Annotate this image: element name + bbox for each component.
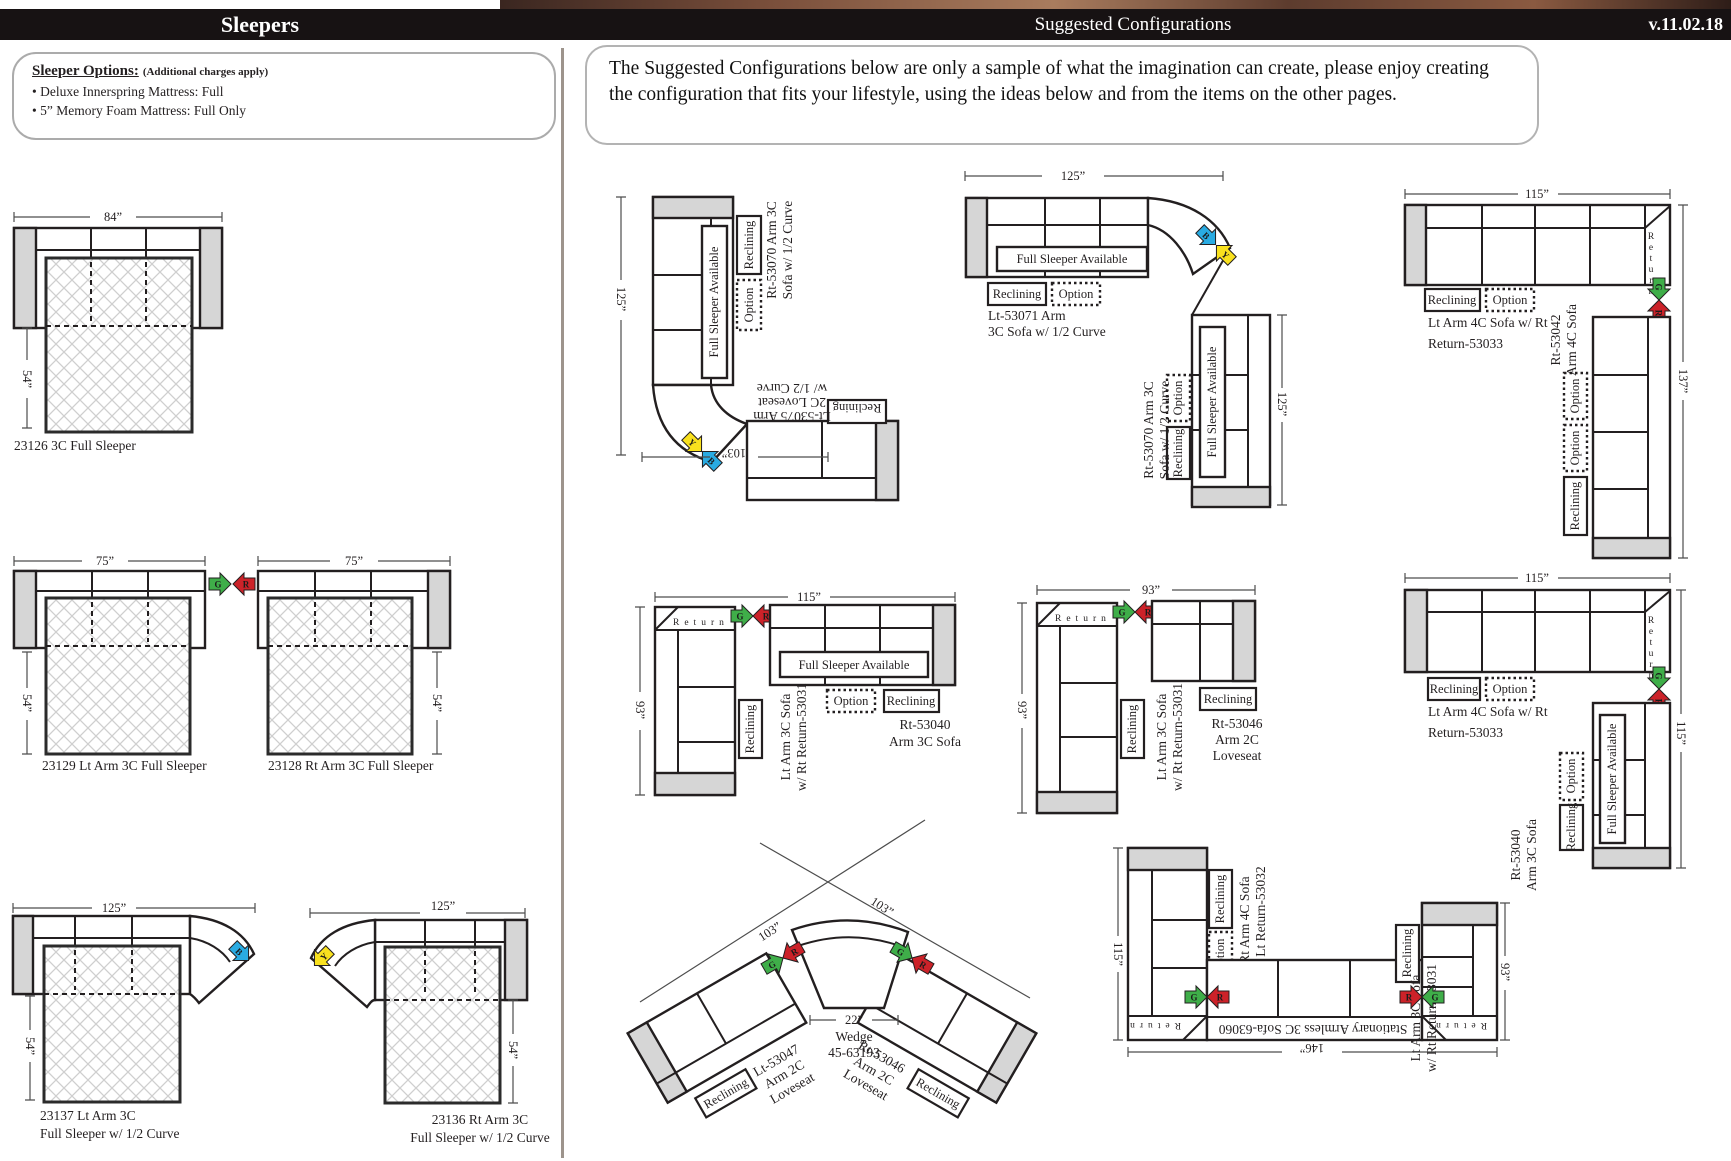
width-dim: 75” [96, 554, 114, 568]
height-dim: 115” [1674, 721, 1688, 745]
full-sleeper-label: Full Sleeper Available [1605, 723, 1619, 834]
dim-left: 103” [756, 919, 784, 944]
width-dim: 146” [1300, 1041, 1324, 1055]
option-label: Option [1564, 758, 1578, 793]
width-dim: 115” [797, 590, 821, 604]
piece-label: Rt-53042 [1548, 314, 1563, 365]
sleeper-label: 23128 Rt Arm 3C Full Sleeper [268, 758, 434, 773]
left-arm [1405, 205, 1426, 285]
wedge-dim: 22” [845, 1013, 863, 1027]
piece-label: Arm 3C Sofa [1524, 819, 1539, 891]
config-wedge-group: 103” 103” Reclining Lt-53047 Arm 2C Love… [628, 820, 1037, 1152]
sleeper-label: 23137 Lt Arm 3C [40, 1108, 136, 1123]
piece-label: Lt-53071 Arm [988, 308, 1066, 323]
reclining-label: Reclining [1564, 802, 1578, 851]
height-dim: 125” [1275, 392, 1289, 416]
piece-label: Rt-53046 [1211, 716, 1262, 731]
reclining-label: Reclining [1125, 704, 1139, 753]
diagram-element: R [1145, 608, 1152, 618]
sleeper-label: Full Sleeper w/ 1/2 Curve [410, 1130, 549, 1145]
bottom-arm [1593, 538, 1670, 558]
config-53071-53070: 125” Full Sleeper Available Reclining Op… [965, 169, 1289, 507]
reclining-label: Reclining [1213, 874, 1227, 923]
piece-label: Loveseat [1213, 748, 1262, 763]
return-label: Return [1431, 1020, 1487, 1030]
left-arm [14, 571, 36, 648]
full-sleeper-label: Full Sleeper Available [799, 658, 910, 672]
sleeper-23128: 75” R 54” 23128 Rt Arm 3C Full Sleeper [233, 554, 450, 773]
option-label: Option [1493, 293, 1528, 307]
diagram-element: G [1118, 608, 1125, 618]
diagram-element: R [243, 580, 250, 590]
right-arm [428, 571, 450, 648]
vert-sofa-body [1593, 317, 1670, 558]
depth-dim: 54” [506, 1041, 520, 1059]
right-arm [933, 605, 955, 685]
height-dim: 93” [1498, 963, 1512, 981]
reclining-label: Reclining [1400, 928, 1414, 977]
piece-label: Stationary Armless 3C Sofa-63060 [1218, 1022, 1407, 1037]
width-dim: 93” [1142, 583, 1160, 597]
diagram-element: R [1654, 310, 1664, 317]
option-label: Option [1568, 430, 1582, 465]
sleeper-label: Full Sleeper w/ 1/2 Curve [40, 1126, 179, 1141]
option-label: Option [1171, 380, 1185, 415]
diagram-shape [310, 908, 525, 918]
diagram-element: R [1217, 993, 1224, 1003]
option-label: Option [1568, 378, 1582, 413]
reclining-label: Reclining [887, 694, 936, 708]
diagram-element: G [1654, 672, 1664, 679]
sleeper-label: 23136 Rt Arm 3C [432, 1112, 528, 1127]
mattress [46, 258, 192, 432]
config-u-shape: Return 115” Reclining Option Rt Arm 4C S… [1111, 848, 1512, 1072]
full-sleeper-label: Full Sleeper Available [1205, 346, 1219, 457]
config-53070-53075: 125” Full Sleeper Available Reclining Op… [614, 197, 898, 500]
right-arm [200, 228, 222, 328]
reclining-label: Reclining [832, 401, 881, 415]
vert-sofa-left [1128, 848, 1207, 1040]
piece-label: Lt-53075 Arm [753, 409, 831, 424]
piece-label: Return-53033 [1428, 725, 1503, 740]
height-dim: 115” [1111, 942, 1125, 966]
piece-label: 2C Loveseat [758, 395, 826, 410]
left-arm [966, 198, 987, 277]
diagram-element: G [1431, 993, 1438, 1003]
bottom-arm [1593, 848, 1670, 868]
half-curve [1148, 198, 1230, 274]
option-label: Option [742, 287, 756, 322]
width-dim: 115” [1525, 187, 1549, 201]
piece-label: Sofa w/ 1/2 Curve [1157, 381, 1172, 480]
diagram-element: G [214, 580, 221, 590]
reclining-label: Reclining [1204, 692, 1253, 706]
reclining-label: Reclining [1171, 428, 1185, 477]
sleeper-label: 23129 Lt Arm 3C Full Sleeper [42, 758, 207, 773]
option-label: Option [1059, 287, 1094, 301]
top-arm [653, 197, 733, 218]
option-label: Option [1493, 682, 1528, 696]
piece-label: Rt-53070 Arm 3C [1141, 381, 1156, 479]
bottom-arm [1192, 487, 1270, 507]
arrow-green-icon: G [209, 573, 231, 595]
top-arm [1422, 903, 1497, 925]
return-label: Return [673, 618, 729, 628]
diagram-element: R [763, 612, 770, 622]
piece-label: Lt Arm 3C Sofa [778, 694, 793, 781]
full-sleeper-label: Full Sleeper Available [707, 246, 721, 357]
piece-label: Rt-53040 [1508, 829, 1523, 880]
width-dim: 115” [1525, 571, 1549, 585]
piece-label: w/ Rt Return-53031 [794, 683, 809, 791]
depth-dim: 54” [23, 1037, 37, 1055]
piece-label: Arm 4C Sofa [1564, 304, 1579, 376]
piece-label: Sofa w/ 1/2 Curve [780, 201, 795, 300]
wedge-label: Wedge [835, 1029, 872, 1044]
width-dim: 84” [104, 210, 122, 224]
return-label: Return [1125, 1020, 1181, 1030]
height-dim: 93” [633, 701, 647, 719]
piece-label: Arm 3C Sofa [889, 734, 961, 749]
top-arm [1128, 848, 1207, 870]
diagram-element: G [736, 612, 743, 622]
mattress [46, 598, 190, 754]
reclining-label: Reclining [1430, 682, 1479, 696]
piece-label: w/ Rt Return-53031 [1170, 683, 1185, 791]
piece-label: w/ 1/2 Curve [757, 381, 828, 396]
reclining-label: Reclining [993, 287, 1042, 301]
dim-right: 103” [868, 894, 896, 919]
piece-label: Rt-53040 [899, 717, 950, 732]
piece-label: Lt Arm 4C Sofa w/ Rt [1428, 704, 1548, 719]
reclining-label: Reclining [1428, 293, 1477, 307]
depth-dim: 54” [20, 694, 34, 712]
piece-label: Return-53033 [1428, 336, 1503, 351]
diagram-canvas: 84” 54” 23126 3C Full Sleeper 75” G 54” … [0, 0, 1731, 1161]
config-53033-53040: 115” Return G R Reclining Option Lt Arm … [1405, 571, 1688, 891]
left-arm [13, 916, 33, 994]
sofa-body [1405, 590, 1670, 672]
diagram-shape [965, 171, 1223, 181]
sofa-body [1405, 205, 1670, 285]
mattress [268, 598, 412, 754]
reclining-label: Reclining [1568, 481, 1582, 530]
bottom-arm [655, 773, 735, 795]
piece-label: w/ Lt Return-53032 [1253, 866, 1268, 973]
left-arm [1405, 590, 1427, 672]
height-dim: 93” [1015, 701, 1029, 719]
sleeper-23126: 84” 54” 23126 3C Full Sleeper [14, 210, 222, 453]
left-arm [14, 228, 36, 328]
mattress [385, 947, 500, 1103]
option-label: Option [834, 694, 869, 708]
width-dim: 125” [102, 901, 126, 915]
piece-label: Lt Arm 3C Sofa [1408, 975, 1423, 1062]
diagram-element: G [1654, 283, 1664, 290]
piece-label: Lt Arm 4C Sofa w/ Rt [1428, 315, 1548, 330]
piece-label: Lt Arm 3C Sofa [1154, 694, 1169, 781]
vert-sofa-body [1037, 603, 1117, 813]
reclining-label: Reclining [742, 220, 756, 269]
sleeper-label: 23126 3C Full Sleeper [14, 438, 136, 453]
mattress [44, 946, 180, 1102]
loveseat-left: Reclining Lt-53047 Arm 2C Loveseat [628, 953, 835, 1152]
width-dim: 75” [345, 554, 363, 568]
config-53033-53042: 115” Return G R Reclining Option Lt Arm … [1405, 187, 1690, 558]
width-dim: 103” [722, 446, 746, 460]
height-dim: 125” [614, 287, 628, 311]
piece-label: Arm 2C [1215, 732, 1259, 747]
diagram-shape [616, 197, 626, 455]
piece-label: 3C Sofa w/ 1/2 Curve [988, 324, 1106, 339]
sleeper-23137: 125” B 54” 23137 Lt Arm 3C Full Sleeper … [13, 901, 256, 1141]
sleeper-23129: 75” G 54” 23129 Lt Arm 3C Full Sleeper [14, 554, 231, 773]
diagram-element: R [1406, 993, 1413, 1003]
height-dim: 137” [1676, 369, 1690, 393]
depth-dim: 54” [20, 370, 34, 388]
config-53031-53040: 115” Return 93” G R Full Sleeper Availab… [633, 590, 961, 795]
vert-sofa-body [655, 607, 735, 795]
full-sleeper-label: Full Sleeper Available [1017, 252, 1128, 266]
bottom-arm [1037, 792, 1117, 813]
width-dim: 125” [1061, 169, 1085, 183]
piece-label: Rt Arm 4C Sofa [1237, 876, 1252, 963]
right-arm [505, 920, 527, 1000]
return-label: Return [1055, 614, 1111, 624]
arrow-red-icon: R [233, 573, 255, 595]
width-dim: 125” [431, 899, 455, 913]
diagram-shape [13, 903, 255, 913]
piece-label: w/ Rt Return-53031 [1424, 964, 1439, 1072]
depth-dim: 54” [430, 694, 444, 712]
config-53031-53046: 93” Return 93” G R Reclining Rt-53046 Ar… [1015, 583, 1263, 813]
diagram-element: G [1190, 993, 1197, 1003]
reclining-label: Reclining [743, 704, 757, 753]
right-arm [1233, 601, 1255, 681]
wedge-label: 45-63193 [828, 1045, 880, 1060]
sleeper-23136: 125” Y 54” 23136 Rt Arm 3C Full Sleeper … [307, 899, 550, 1145]
piece-label: Rt-53070 Arm 3C [764, 201, 779, 299]
right-arm [876, 421, 898, 500]
